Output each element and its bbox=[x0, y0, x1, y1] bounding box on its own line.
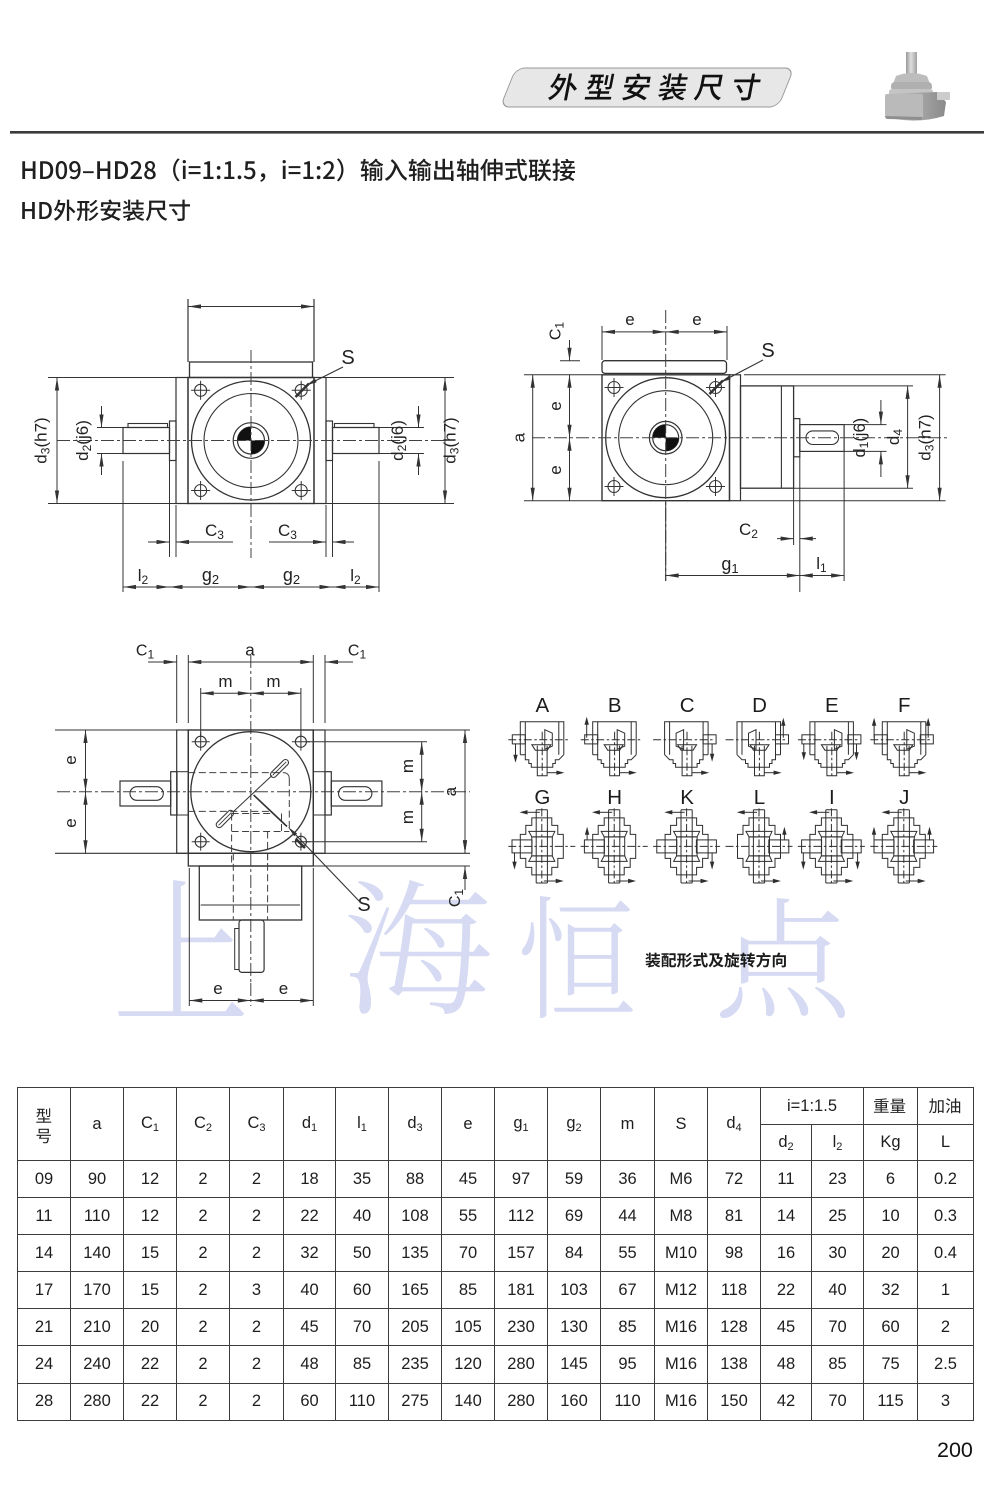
svg-text:d2(j6): d2(j6) bbox=[388, 420, 409, 461]
svg-text:G: G bbox=[534, 786, 550, 809]
svg-text:d2(j6): d2(j6) bbox=[73, 420, 94, 461]
svg-text:S: S bbox=[341, 347, 354, 369]
svg-text:a: a bbox=[510, 432, 529, 442]
svg-text:e: e bbox=[61, 818, 80, 827]
svg-text:l2: l2 bbox=[350, 566, 361, 587]
svg-text:D: D bbox=[752, 694, 767, 717]
svg-text:e: e bbox=[546, 401, 565, 410]
svg-text:I: I bbox=[829, 786, 835, 809]
svg-text:J: J bbox=[899, 786, 909, 809]
svg-text:e: e bbox=[692, 310, 701, 329]
svg-text:a: a bbox=[245, 641, 255, 660]
svg-text:e: e bbox=[546, 465, 565, 474]
svg-text:d3(h7): d3(h7) bbox=[32, 417, 53, 463]
svg-text:L: L bbox=[754, 786, 765, 809]
svg-text:e: e bbox=[61, 755, 80, 764]
svg-text:m: m bbox=[398, 759, 417, 773]
svg-text:C2: C2 bbox=[739, 520, 758, 541]
svg-text:C1: C1 bbox=[447, 889, 466, 908]
svg-text:S: S bbox=[357, 894, 370, 916]
svg-text:m: m bbox=[398, 810, 417, 824]
svg-text:C1: C1 bbox=[136, 643, 155, 662]
svg-text:e: e bbox=[625, 310, 634, 329]
svg-text:C1: C1 bbox=[548, 322, 567, 341]
svg-text:B: B bbox=[608, 694, 622, 717]
svg-text:S: S bbox=[761, 340, 774, 362]
svg-text:d4: d4 bbox=[884, 429, 905, 445]
svg-text:l1: l1 bbox=[816, 554, 827, 575]
svg-text:C3: C3 bbox=[278, 521, 297, 542]
svg-text:d3(h7): d3(h7) bbox=[916, 414, 937, 460]
svg-text:a: a bbox=[441, 786, 460, 796]
svg-text:d3(h7): d3(h7) bbox=[441, 417, 462, 463]
svg-text:g2: g2 bbox=[283, 565, 300, 587]
svg-text:e: e bbox=[279, 979, 288, 998]
svg-text:F: F bbox=[898, 694, 911, 717]
svg-text:m: m bbox=[266, 672, 280, 691]
svg-text:l2: l2 bbox=[138, 566, 149, 587]
svg-text:K: K bbox=[680, 786, 694, 809]
svg-text:d1(j6): d1(j6) bbox=[851, 418, 871, 458]
svg-text:C: C bbox=[680, 694, 695, 717]
svg-text:e: e bbox=[213, 979, 222, 998]
svg-text:H: H bbox=[607, 786, 622, 809]
svg-text:C1: C1 bbox=[348, 643, 367, 662]
svg-text:m: m bbox=[218, 672, 232, 691]
svg-text:g2: g2 bbox=[202, 565, 219, 587]
svg-text:C3: C3 bbox=[205, 521, 224, 542]
svg-text:A: A bbox=[535, 694, 549, 717]
svg-text:g1: g1 bbox=[721, 554, 738, 576]
svg-text:E: E bbox=[825, 694, 839, 717]
